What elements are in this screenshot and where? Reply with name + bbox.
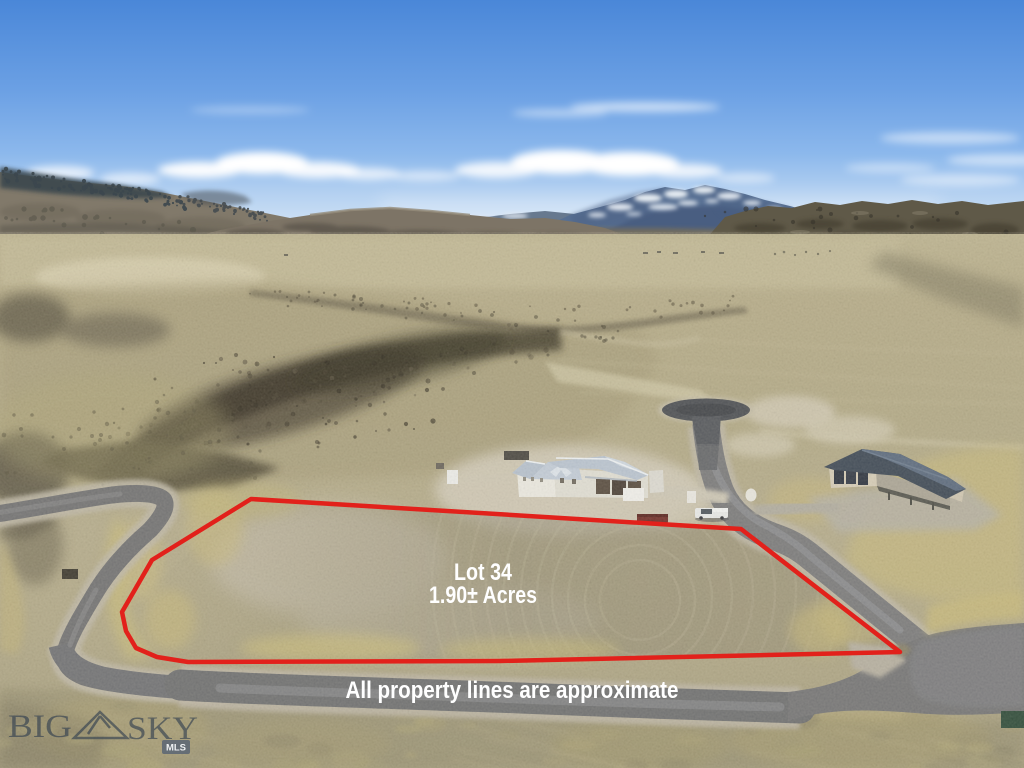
svg-text:1.90± Acres: 1.90± Acres bbox=[429, 582, 537, 609]
svg-text:BIG: BIG bbox=[8, 709, 72, 745]
svg-text:All property lines are approxi: All property lines are approximate bbox=[346, 677, 679, 704]
svg-text:MLS: MLS bbox=[166, 743, 186, 754]
